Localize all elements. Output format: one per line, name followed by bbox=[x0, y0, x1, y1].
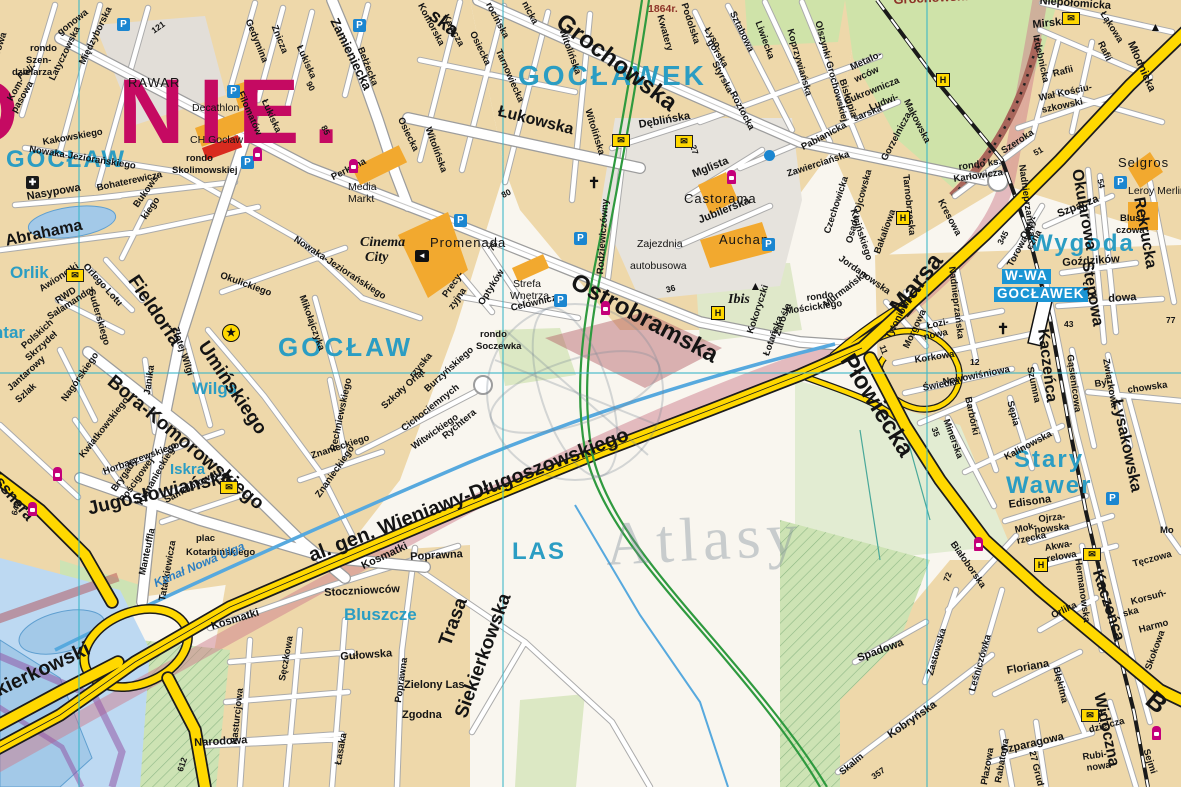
street-label: Mo bbox=[1160, 526, 1174, 536]
road-number: 51 bbox=[1032, 145, 1044, 157]
street-label: Janika bbox=[143, 365, 157, 396]
road-number: 77 bbox=[1166, 316, 1175, 325]
street-label: Hermanowska bbox=[1073, 558, 1091, 623]
parking-icon bbox=[117, 18, 130, 31]
road-number: 80 bbox=[500, 188, 512, 200]
street-label: Błękitna bbox=[1051, 666, 1069, 704]
street-label: Ostrobramska bbox=[567, 270, 722, 368]
street-label: Kwiatkowskiego bbox=[78, 396, 131, 460]
street-label: Roztocka bbox=[728, 90, 756, 132]
street-label: Kaczeńca bbox=[1089, 568, 1127, 643]
street-label: Marsa bbox=[886, 249, 948, 318]
road-number: 11 bbox=[878, 344, 889, 355]
street-label: Styrska bbox=[710, 60, 735, 95]
road-number: 12 bbox=[970, 358, 979, 367]
poi-label: Zajezdnia bbox=[637, 239, 683, 250]
map-labels-layer: DNIE.GOCŁAWGOCŁAWGOCŁAWEKWygodaStaryWawe… bbox=[0, 0, 1181, 787]
district-label: Bluszcze bbox=[344, 606, 417, 623]
street-label: Rafii bbox=[1095, 40, 1113, 63]
street-label: Rodziewiczówny bbox=[596, 199, 611, 275]
poi-label: City bbox=[365, 251, 388, 265]
street-label: Barbórki bbox=[963, 396, 980, 436]
hotel-icon bbox=[936, 73, 950, 87]
hotel-icon bbox=[711, 306, 725, 320]
fuel-icon bbox=[53, 467, 62, 481]
street-label: Sejmi bbox=[1141, 748, 1158, 775]
street-label: Minerska bbox=[941, 418, 964, 460]
street-label: Floriana bbox=[1006, 659, 1050, 677]
parking-icon bbox=[454, 214, 467, 227]
street-label: Młodnicka bbox=[1125, 40, 1157, 94]
church-icon bbox=[588, 176, 600, 190]
street-label: Łysakowska bbox=[1108, 398, 1143, 494]
street-label: Znicza bbox=[269, 24, 289, 55]
street-label: rondo bbox=[30, 44, 57, 54]
street-label: Rafii bbox=[1052, 65, 1074, 80]
street-label: Optyków bbox=[477, 268, 506, 307]
street-label: Tęczowa bbox=[1132, 550, 1173, 569]
street-label: Blusz- bbox=[1120, 214, 1149, 224]
parking-icon bbox=[1106, 492, 1119, 505]
triangle-icon bbox=[1149, 20, 1162, 33]
street-label: nicka bbox=[520, 0, 540, 26]
poi-label: Selgros bbox=[1118, 156, 1169, 169]
poi-label: Ibis bbox=[728, 293, 750, 307]
street-label: Nagórskiego bbox=[60, 351, 101, 404]
road-number: 121 bbox=[150, 20, 166, 35]
parking-icon bbox=[227, 85, 240, 98]
street-label: Rabatowa bbox=[994, 738, 1011, 784]
park-label: 1864r. bbox=[648, 4, 678, 15]
street-label: nowa bbox=[923, 328, 949, 342]
road-number: 357 bbox=[870, 766, 886, 781]
street-label: Bakaliowa bbox=[873, 208, 898, 255]
mailbox-icon bbox=[220, 481, 238, 494]
street-label: Tarnobrzeska bbox=[901, 174, 917, 236]
district-label: GOCŁAW bbox=[278, 334, 413, 360]
street-label: Liwiecka bbox=[753, 20, 775, 60]
parking-icon bbox=[574, 232, 587, 245]
fuel-icon bbox=[974, 537, 983, 551]
street-label: Szkoły Orląt bbox=[380, 367, 427, 411]
street-label: Skokowa bbox=[1144, 629, 1167, 671]
district-label: Orlik bbox=[10, 264, 49, 281]
star-icon bbox=[222, 324, 240, 342]
street-label: Manteuffla bbox=[138, 528, 157, 576]
street-label: Sztabowa bbox=[727, 10, 755, 54]
hotel-icon bbox=[1034, 558, 1048, 572]
street-label: Kwatery bbox=[655, 14, 674, 52]
street-label: Czechowicka bbox=[823, 175, 850, 235]
street-label: Trasa bbox=[436, 595, 471, 648]
street-label: Gąsienicowa bbox=[1065, 354, 1082, 413]
street-label: Koprzywiańska bbox=[785, 28, 813, 97]
road-name-on-highway: kierkowski bbox=[0, 639, 93, 700]
hospital-icon bbox=[26, 176, 39, 189]
street-label: Gułowska bbox=[340, 648, 393, 663]
street-label: Izdebnicka bbox=[1031, 34, 1050, 83]
street-label: Świecka bbox=[922, 377, 961, 393]
road-number: 43 bbox=[1064, 320, 1073, 329]
poi-label: Cinema bbox=[360, 236, 405, 250]
street-label: czowa bbox=[1116, 226, 1145, 236]
street-label: rondo bbox=[480, 330, 507, 340]
street-label: rocińska bbox=[484, 1, 511, 40]
street-label: Osiecka bbox=[467, 30, 492, 67]
fuel-icon bbox=[349, 159, 358, 173]
street-label: Złotej Wilgi bbox=[170, 326, 195, 377]
street-label: ska bbox=[1122, 606, 1140, 619]
street-label: Zgodna bbox=[402, 710, 442, 721]
park-label: Grochowska bbox=[893, 0, 972, 6]
street-label: nowa bbox=[1086, 761, 1111, 774]
poi-label: Media bbox=[348, 182, 377, 193]
road-number: 72 bbox=[942, 571, 953, 583]
street-label: Olszynki Grochowskiej bbox=[813, 20, 849, 123]
street-label: Leśniczówka bbox=[968, 634, 993, 693]
street-label: Mglista bbox=[691, 156, 730, 180]
street-label: Szeroka bbox=[1000, 128, 1036, 156]
street-label: Skolimowskiej bbox=[172, 166, 237, 176]
street-label: Soczewka bbox=[476, 342, 521, 352]
poi-label: Leroy Merlin bbox=[1128, 186, 1181, 197]
street-label: Orlika bbox=[1050, 601, 1078, 621]
street-label: Okulickiego bbox=[219, 271, 273, 298]
station-sign: W-WA bbox=[1002, 269, 1051, 284]
poi-label: CH Gocław bbox=[190, 135, 243, 146]
street-label: Niepołomicka bbox=[1039, 0, 1111, 12]
mailbox-icon bbox=[66, 269, 84, 282]
street-label: Szen- bbox=[26, 56, 51, 66]
street-label: Pabianicka bbox=[800, 121, 848, 153]
watermark-text: Atlasy bbox=[604, 504, 805, 576]
street-label: 27 Grud bbox=[1027, 750, 1045, 787]
street-label: By- bbox=[1094, 378, 1110, 390]
street-label: chowska bbox=[1127, 380, 1168, 395]
street-label: Łukowska bbox=[496, 104, 575, 138]
poi-label: Decathlon bbox=[192, 103, 239, 114]
fuel-icon bbox=[28, 502, 37, 516]
street-label: Gedymina bbox=[243, 18, 269, 64]
street-label: Abrahama bbox=[4, 218, 84, 250]
church-icon bbox=[997, 322, 1009, 336]
parking-icon bbox=[554, 294, 567, 307]
fuel-icon bbox=[601, 301, 610, 315]
street-label: Kakowskiego bbox=[42, 127, 103, 147]
poi-label: Markt bbox=[348, 194, 374, 205]
street-label: Spadowa bbox=[856, 637, 905, 664]
mailbox-icon bbox=[1083, 548, 1101, 561]
fuel-icon bbox=[1152, 726, 1161, 740]
road-name-on-highway: B bbox=[1141, 686, 1172, 718]
district-label: LAS bbox=[512, 540, 566, 564]
street-label: Witolińska bbox=[423, 126, 448, 174]
street-label: Witolińska bbox=[583, 108, 606, 156]
triangle-icon bbox=[749, 279, 762, 292]
parking-icon bbox=[1114, 176, 1127, 189]
street-label: Dęblińska bbox=[638, 111, 691, 131]
street-label: Kosmatki bbox=[210, 608, 261, 633]
street-label: Łąkowa bbox=[1098, 10, 1125, 45]
fuel-icon bbox=[253, 147, 262, 161]
street-label: Osiecka bbox=[395, 116, 420, 153]
station-sign: GOCŁAWEK bbox=[994, 287, 1088, 302]
street-label: Sępia bbox=[1005, 400, 1021, 427]
street-label: Zastowska bbox=[926, 627, 949, 676]
cinema-icon bbox=[415, 250, 429, 262]
road-number: 345 bbox=[996, 229, 1010, 246]
street-label: Podolska bbox=[679, 2, 701, 45]
street-label: Łasaka bbox=[334, 732, 349, 765]
street-label: Skalm bbox=[838, 752, 866, 777]
street-label: rondo bbox=[186, 154, 213, 164]
city-map[interactable]: DNIE.GOCŁAWGOCŁAWGOCŁAWEKWygodaStaryWawe… bbox=[0, 0, 1181, 787]
street-label: Zarośla bbox=[773, 302, 793, 337]
street-label: Sęczkowa bbox=[278, 635, 295, 681]
road-number: 54 bbox=[1096, 178, 1107, 189]
hotel-icon bbox=[896, 211, 910, 225]
mailbox-icon bbox=[1081, 709, 1099, 722]
street-label: Poprawna bbox=[410, 549, 463, 563]
road-number: 36 bbox=[665, 284, 676, 295]
street-label: Płowiecka bbox=[836, 350, 918, 461]
dot-icon bbox=[764, 150, 775, 161]
street-label: Korkowa bbox=[914, 350, 955, 366]
poi-label: RAWAR bbox=[128, 76, 180, 89]
road-number: 612 bbox=[176, 757, 188, 773]
street-label: plac bbox=[196, 534, 215, 544]
parking-icon bbox=[762, 238, 775, 251]
road-number: 35 bbox=[930, 426, 941, 438]
poi-label: Strefa bbox=[513, 279, 541, 290]
mailbox-icon bbox=[1062, 12, 1080, 25]
street-label: Stoczniowców bbox=[324, 584, 400, 599]
street-label: Kobryńska bbox=[886, 699, 939, 741]
fuel-icon bbox=[727, 170, 736, 184]
street-label: dowa bbox=[1108, 292, 1137, 305]
street-label: Nadnieprzańska bbox=[947, 266, 965, 339]
street-label: sarska bbox=[852, 104, 883, 124]
parking-icon bbox=[353, 19, 366, 32]
district-label: Jantar bbox=[0, 324, 25, 341]
street-label: Zielony Las bbox=[404, 680, 465, 691]
street-label: Kresowa bbox=[936, 198, 963, 237]
street-label: Torowa bbox=[1006, 235, 1030, 269]
mailbox-icon bbox=[612, 134, 630, 147]
street-label: Mościckiego bbox=[785, 299, 843, 316]
poi-label: Wnętrza bbox=[510, 291, 549, 302]
poi-label: autobusowa bbox=[630, 261, 687, 272]
mailbox-icon bbox=[675, 135, 693, 148]
